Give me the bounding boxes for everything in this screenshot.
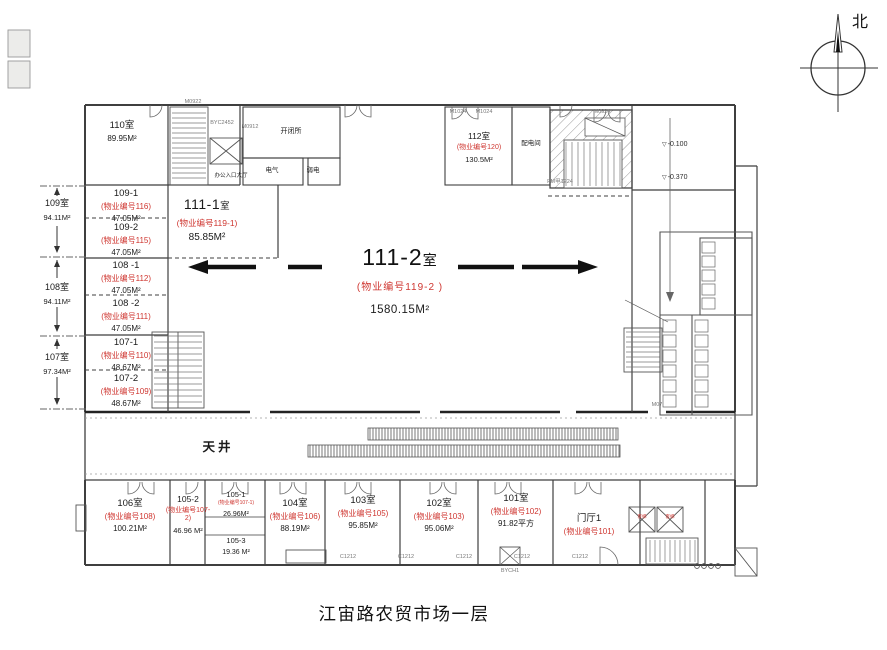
room-number: 105-1 bbox=[218, 490, 254, 499]
property-number: (物业编号107-1) bbox=[218, 500, 254, 506]
plan-labels-layer: 110室89.95M²109-1(物业编号116)47.05M²109-2(物业… bbox=[0, 0, 887, 650]
room-label-r107_2: 107-2(物业编号109)48.67M² bbox=[101, 373, 152, 409]
property-number: (物业编号115) bbox=[101, 236, 151, 246]
property-number: (物业编号110) bbox=[101, 351, 151, 361]
room-area: 47.05M² bbox=[101, 286, 151, 296]
room-label-r105_3: 105-319.36 M² bbox=[222, 536, 250, 558]
room-area: 48.67M² bbox=[101, 399, 152, 409]
door-window-code: BYC2452 bbox=[210, 120, 234, 126]
room-label-r105_1: 105-1(物业编号107-1)26.96M² bbox=[218, 490, 254, 519]
room-label-r102: 102室(物业编号103)95.06M² bbox=[414, 498, 465, 534]
door-window-code: FM甲1224 bbox=[547, 177, 573, 185]
annotation-kaibisuo: 开闭所 bbox=[281, 128, 302, 137]
room-number: 108 -1 bbox=[101, 260, 151, 272]
level-mark-triangle: ▽ bbox=[662, 175, 667, 181]
room-area: 1580.15M² bbox=[357, 303, 443, 317]
room-area: 100.21M² bbox=[105, 524, 156, 534]
property-number: (物业编号103) bbox=[414, 512, 465, 522]
door-window-code: M07 bbox=[652, 402, 663, 408]
side-room-area: 97.34M² bbox=[43, 367, 71, 376]
room-number: 108 -2 bbox=[101, 298, 151, 310]
room-label-r108_2: 108 -2(物业编号111)47.05M² bbox=[101, 298, 151, 334]
room-area: 47.05M² bbox=[101, 248, 151, 258]
door-window-code: M1024 bbox=[450, 109, 467, 115]
room-number: 112室 bbox=[457, 131, 501, 142]
room-number: 103室 bbox=[338, 495, 389, 507]
door-window-code: C1212 bbox=[514, 554, 530, 560]
annotation-dianqi: 电气 bbox=[266, 167, 279, 175]
door-window-code: M1024 bbox=[476, 109, 493, 115]
room-area: 48.67M² bbox=[101, 363, 151, 373]
elevation-mark-lv2: ▽-0.370 bbox=[662, 174, 687, 181]
room-label-r109_2: 109-2(物业编号115)47.05M² bbox=[101, 222, 151, 258]
side-room-number: 108室 bbox=[44, 282, 71, 293]
room-number: 111-1室 bbox=[177, 196, 238, 214]
property-number: (物业编号109) bbox=[101, 387, 152, 397]
room-label-r104: 104室(物业编号106)88.19M² bbox=[270, 498, 321, 534]
elevation-mark-lv1: ▽-0.100 bbox=[662, 141, 687, 148]
drawing-title: 江宙路农贸市场一层 bbox=[319, 601, 490, 626]
floor-plan-page: 110室89.95M²109-1(物业编号116)47.05M²109-2(物业… bbox=[0, 0, 887, 650]
room-label-r110: 110室89.95M² bbox=[107, 120, 136, 144]
room-area: 89.95M² bbox=[107, 134, 136, 144]
side-room-number: 107室 bbox=[43, 352, 71, 363]
side-room-label-s108: 108室94.11M² bbox=[44, 282, 71, 307]
room-area: 95.85M² bbox=[338, 521, 389, 531]
room-label-r108_1: 108 -1(物业编号112)47.05M² bbox=[101, 260, 151, 296]
room-number: 门厅1 bbox=[564, 513, 615, 525]
property-number: (物业编号106) bbox=[270, 512, 321, 522]
room-number: 102室 bbox=[414, 498, 465, 510]
room-area: 47.05M² bbox=[101, 324, 151, 334]
room-label-r109_1: 109-1(物业编号116)47.05M² bbox=[101, 188, 151, 224]
annotation-ele2: 客梯 bbox=[666, 514, 675, 520]
room-number: 104室 bbox=[270, 498, 321, 510]
room-label-r107_1: 107-1(物业编号110)48.67M² bbox=[101, 337, 151, 373]
property-number: (物业编号102) bbox=[491, 507, 542, 517]
room-number: 105-3 bbox=[222, 536, 250, 545]
room-area: 95.06M² bbox=[414, 524, 465, 534]
property-number: (物业编号107-2) bbox=[164, 507, 212, 524]
room-number: 105-2 bbox=[164, 494, 212, 505]
annotation-peidian: 配电间 bbox=[521, 140, 541, 148]
property-number: (物业编号105) bbox=[338, 509, 389, 519]
room-label-rmt: 门厅1(物业编号101) bbox=[564, 513, 615, 537]
side-room-number: 109室 bbox=[44, 198, 71, 209]
door-window-code: M0912 bbox=[242, 124, 259, 130]
annotation-lobby: 办公入口大厅 bbox=[214, 173, 247, 180]
room-area: 46.96 M² bbox=[164, 526, 212, 535]
room-number: 109-2 bbox=[101, 222, 151, 234]
side-room-area: 94.11M² bbox=[44, 297, 71, 306]
room-area: 19.36 M² bbox=[222, 549, 250, 558]
side-room-label-s107: 107室97.34M² bbox=[43, 352, 71, 377]
room-number: 107-1 bbox=[101, 337, 151, 349]
room-number: 106室 bbox=[105, 498, 156, 510]
door-window-code: C1212 bbox=[398, 554, 414, 560]
room-label-r103: 103室(物业编号105)95.85M² bbox=[338, 495, 389, 531]
room-number: 107-2 bbox=[101, 373, 152, 385]
property-number: (物业编号119-2 ) bbox=[357, 282, 443, 295]
annotation-ruodian: 弱电 bbox=[307, 167, 320, 175]
room-label-r106: 106室(物业编号108)100.21M² bbox=[105, 498, 156, 534]
property-number: (物业编号108) bbox=[105, 512, 156, 522]
room-number: 110室 bbox=[107, 120, 136, 132]
north-label: 北 bbox=[852, 8, 868, 32]
room-area: 130.5M² bbox=[457, 155, 501, 164]
room-label-r111_2: 111-2室(物业编号119-2 )1580.15M² bbox=[357, 243, 443, 318]
room-area: 85.85M² bbox=[177, 232, 238, 245]
property-number: (物业编号119-1) bbox=[177, 218, 238, 229]
property-number: (物业编号120) bbox=[457, 144, 501, 152]
door-window-code: C1212 bbox=[572, 554, 588, 560]
door-window-code: BYCH1 bbox=[501, 568, 519, 574]
room-label-r105_2: 105-2(物业编号107-2)46.96 M² bbox=[164, 494, 212, 536]
room-number: 101室 bbox=[491, 493, 542, 505]
annotation-tianjing: 天井 bbox=[202, 440, 233, 456]
room-number: 109-1 bbox=[101, 188, 151, 200]
elevation-value: -0.100 bbox=[668, 141, 688, 148]
room-label-r111_1: 111-1室(物业编号119-1)85.85M² bbox=[177, 196, 238, 245]
room-area: 88.19M² bbox=[270, 524, 321, 534]
property-number: (物业编号112) bbox=[101, 274, 151, 284]
room-number: 111-2室 bbox=[357, 243, 443, 272]
level-mark-triangle: ▽ bbox=[662, 142, 667, 148]
annotation-ele1: 客梯 bbox=[638, 514, 647, 520]
door-window-code: C1212 bbox=[340, 554, 356, 560]
door-window-code: M0924 bbox=[594, 109, 611, 115]
room-label-r101: 101室(物业编号102)91.82平方 bbox=[491, 493, 542, 529]
side-room-label-s109: 109室94.11M² bbox=[44, 198, 71, 223]
room-area: 91.82平方 bbox=[491, 519, 542, 529]
door-window-code: C1212 bbox=[456, 554, 472, 560]
property-number: (物业编号116) bbox=[101, 202, 151, 212]
side-room-area: 94.11M² bbox=[44, 213, 71, 222]
room-area: 26.96M² bbox=[218, 511, 254, 520]
property-number: (物业编号111) bbox=[101, 312, 151, 322]
property-number: (物业编号101) bbox=[564, 527, 615, 537]
room-label-r112: 112室(物业编号120)130.5M² bbox=[457, 131, 501, 164]
door-window-code: M0922 bbox=[185, 99, 202, 105]
elevation-value: -0.370 bbox=[668, 174, 688, 181]
